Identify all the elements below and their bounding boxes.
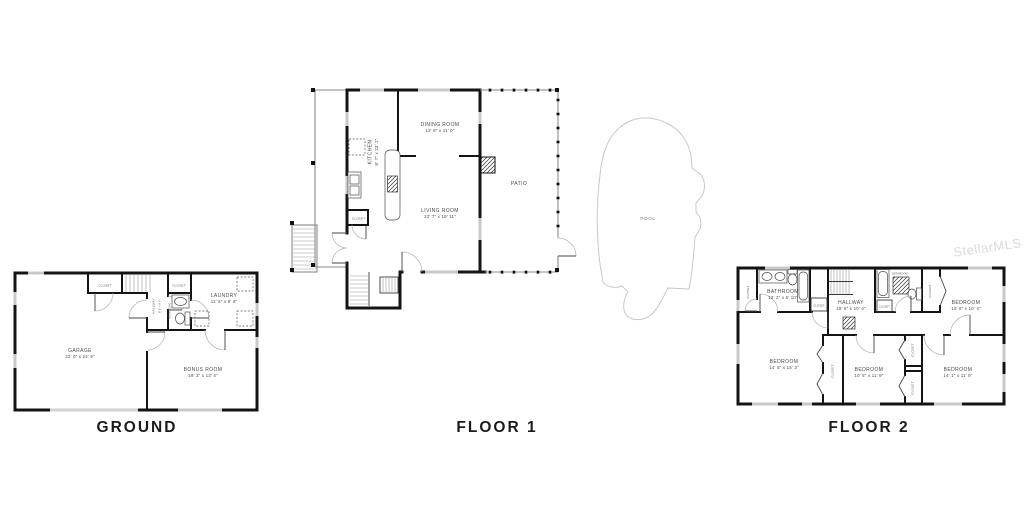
floor2-stairs <box>829 269 853 295</box>
toilet-tank <box>185 312 190 325</box>
floor1-title: FLOOR 1 <box>456 419 537 436</box>
closet-label: CLOSET <box>172 284 186 288</box>
closet-label: CLOSET <box>746 285 750 299</box>
sink-basin <box>775 273 785 281</box>
stair-post <box>290 221 294 225</box>
hallway-dims: 8' 0" x 9' 0" <box>158 299 162 313</box>
closet-label: CLOSET <box>911 381 915 395</box>
chase <box>843 317 855 329</box>
ground-stairs <box>126 274 150 292</box>
kitchen-label: KITCHEN <box>368 140 374 165</box>
stair-post <box>290 268 294 272</box>
closet-label: CLOSET <box>928 284 932 298</box>
bedroom-dims: 14' 5" x 15' 3" <box>769 365 799 370</box>
floor2-title: FLOOR 2 <box>828 419 909 436</box>
pool-label: POOL <box>640 216 655 221</box>
closet-label: CLOSET <box>98 284 112 288</box>
bathtub-inner <box>879 272 888 296</box>
bonus-room-dims: 19' 3" x 13' 4" <box>188 373 218 378</box>
sink-basin <box>350 175 359 184</box>
sink-basin <box>350 186 359 195</box>
floor1-plan: CLOSET KITCHEN 8' 7" x 23' 1" DINING ROO… <box>290 88 576 308</box>
deck-and-exterior-stairs <box>290 88 347 272</box>
deck-post <box>311 88 315 92</box>
refrigerator <box>349 139 365 155</box>
bedroom-dims: 10' 8" x 10' 4" <box>951 306 981 311</box>
bedroom-dims: 10' 5" x 11' 9" <box>854 373 883 378</box>
watermark: StellarMLS <box>952 235 1022 259</box>
toilet-tank <box>788 270 797 275</box>
dining-room-dims: 13' 8" x 11' 0" <box>425 128 454 133</box>
toilet-tank <box>917 288 922 300</box>
fireplace <box>481 157 495 173</box>
deck-post <box>311 263 315 267</box>
ground-bathroom-label: BATHROOM <box>167 303 171 319</box>
living-room-dims: 22' 7" x 19' 11" <box>424 214 456 219</box>
floor1-windows <box>347 90 480 272</box>
laundry-dims: 11' 5" x 9' 0" <box>211 299 238 304</box>
floor1-stairs <box>350 272 398 306</box>
floorplan-page: GARAGE 22' 0" x 22' 9" BONUS ROOM 19' 3"… <box>0 0 1024 508</box>
garage-dims: 22' 0" x 22' 9" <box>65 354 95 359</box>
floor1-exterior-walls <box>347 90 485 308</box>
toilet <box>908 289 916 299</box>
pool-outline: POOL <box>597 118 704 320</box>
kitchen-dims: 8' 7" x 23' 1" <box>374 138 379 165</box>
closet-label: CLOSET <box>831 364 835 378</box>
closet-label: CLOSET <box>911 343 915 357</box>
stove <box>388 176 398 192</box>
sink-basin <box>762 273 772 281</box>
patio-label: PATIO <box>511 181 527 187</box>
closet-label: CLOSET <box>879 305 890 309</box>
floor1-doors <box>332 225 576 272</box>
toilet <box>176 313 185 324</box>
deck-post <box>311 161 315 165</box>
closet-label: CLOSET <box>814 304 825 308</box>
toilet <box>788 274 797 285</box>
bathtub-inner <box>799 272 808 300</box>
ground-floor-plan: GARAGE 22' 0" x 22' 9" BONUS ROOM 19' 3"… <box>15 273 257 410</box>
bathroom2-label: BATHROOM <box>892 272 908 276</box>
sink-basin <box>175 298 187 306</box>
floor-plan-image: GARAGE 22' 0" x 22' 9" BONUS ROOM 19' 3"… <box>0 0 1024 508</box>
hallway-dims: 18' 5" x 10' 4" <box>836 306 866 311</box>
bathroom-dims: 12' 2" x 6' 10" <box>768 295 798 300</box>
floor2-plan: BATHROOM 12' 2" x 6' 10" BATHROOM HALLWA… <box>738 268 1004 404</box>
ground-title: GROUND <box>97 419 178 436</box>
closet-label: CLOSET <box>352 217 366 221</box>
hallway-label: HALLWAY <box>152 298 156 314</box>
shower <box>893 277 909 294</box>
bedroom-dims: 14' 1" x 11' 9" <box>943 373 972 378</box>
